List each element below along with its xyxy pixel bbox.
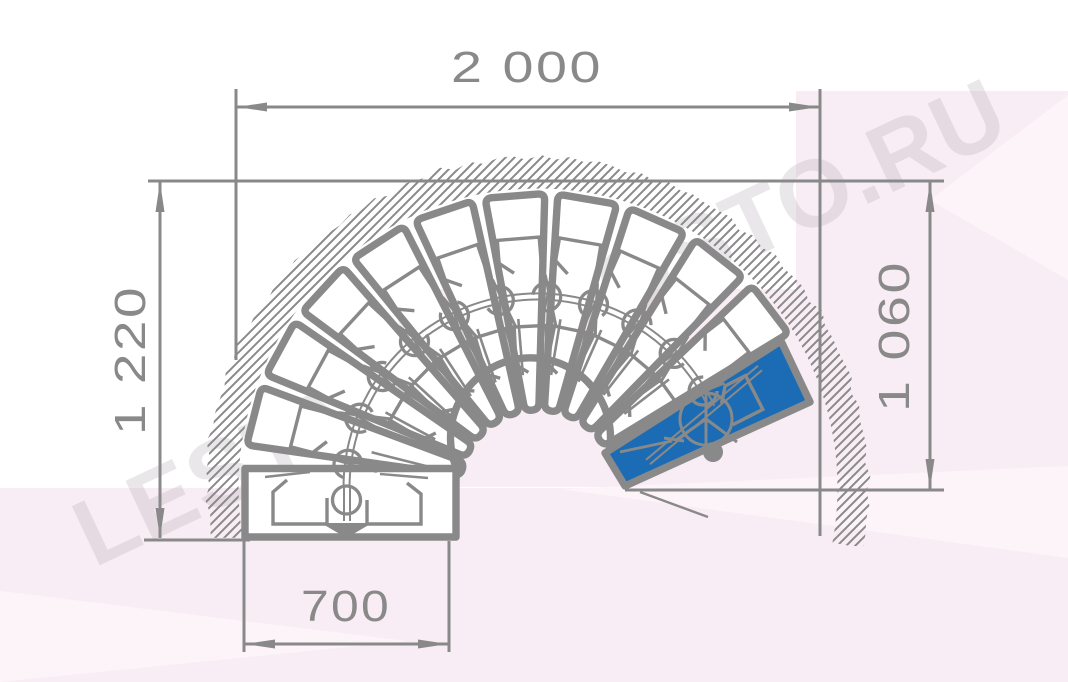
svg-text:2 000: 2 000: [451, 43, 603, 92]
svg-text:700: 700: [301, 582, 391, 631]
svg-text:1 220: 1 220: [106, 285, 155, 435]
svg-text:1 060: 1 060: [870, 260, 919, 412]
